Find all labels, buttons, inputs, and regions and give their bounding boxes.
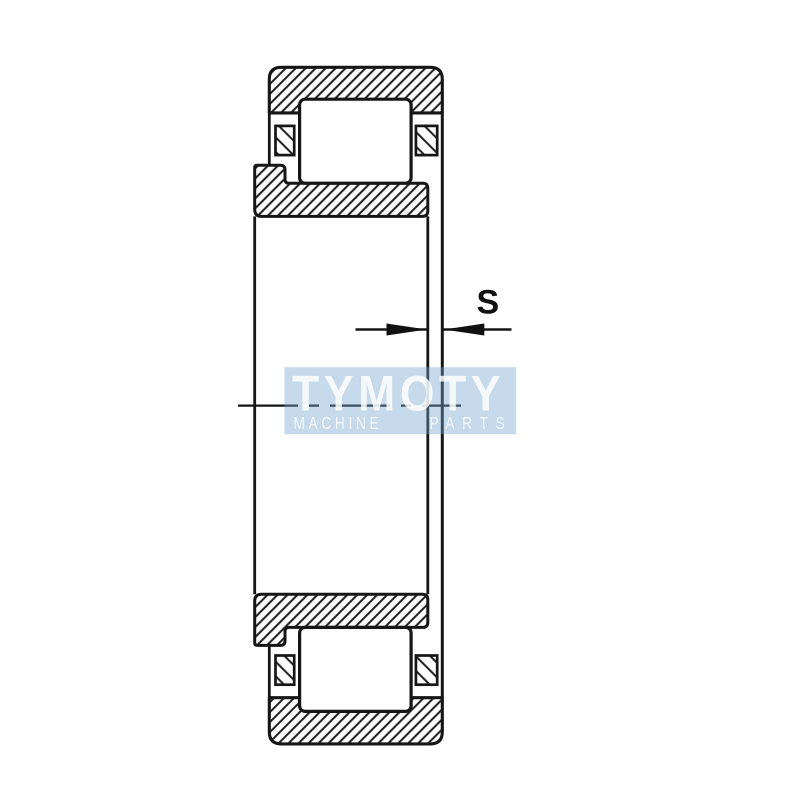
svg-text:S: S bbox=[477, 284, 500, 322]
